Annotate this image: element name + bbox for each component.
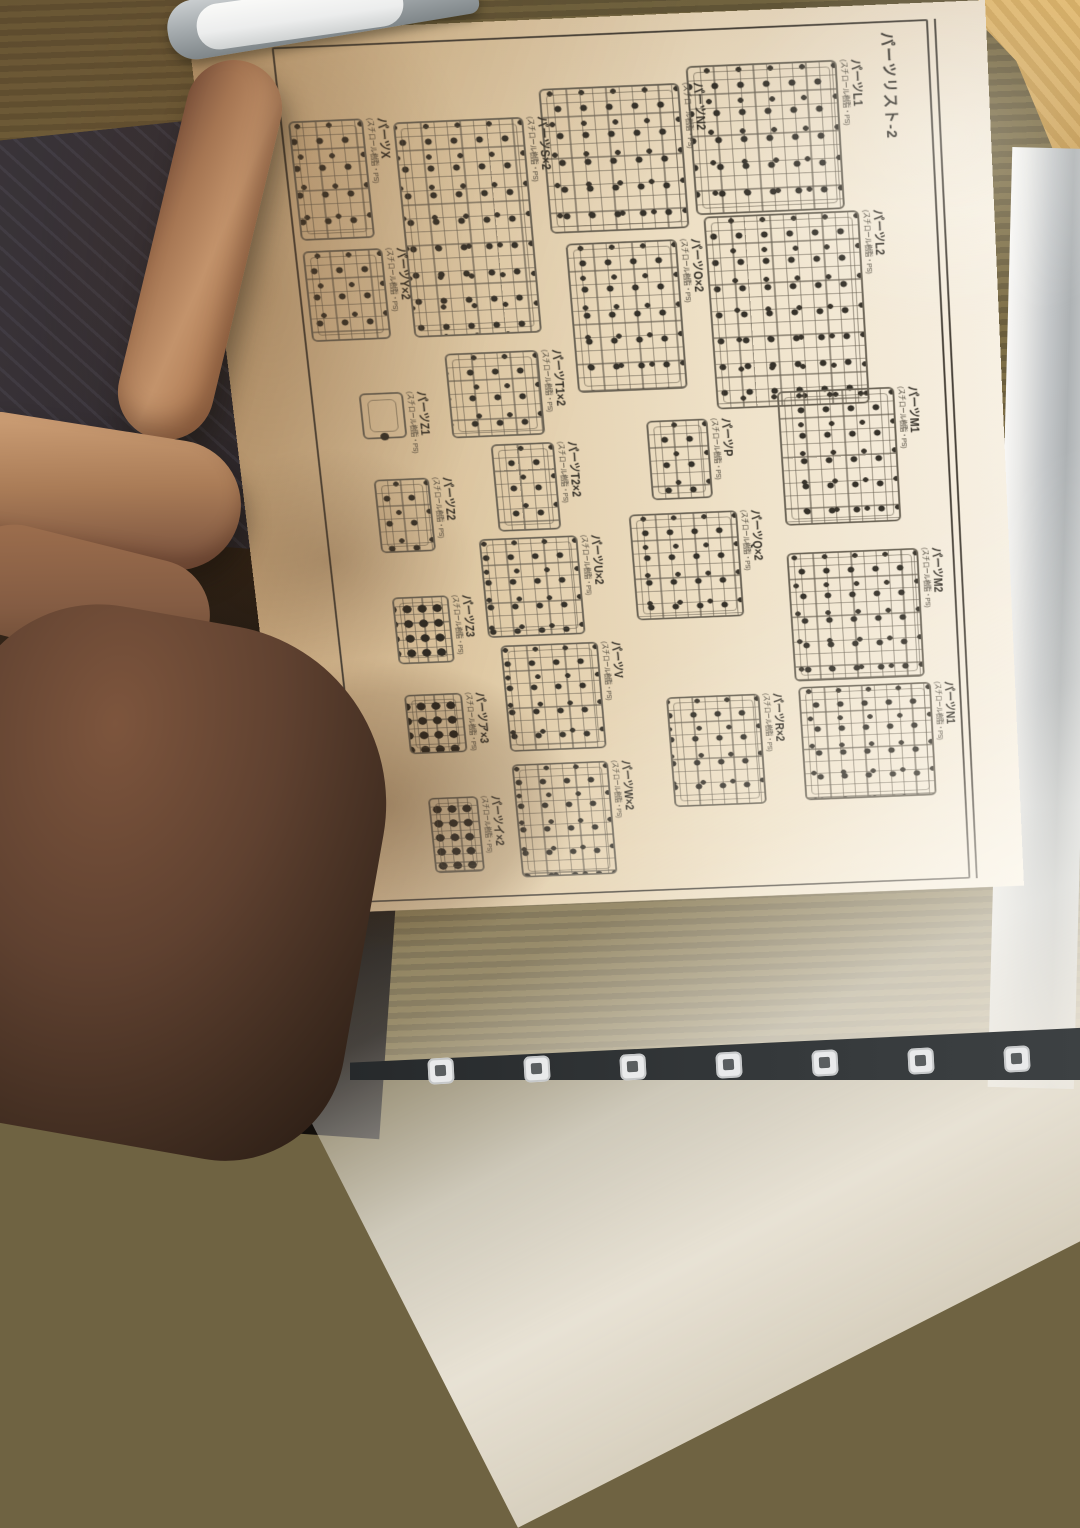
part-entry-t2: パーツT2×2 (スチロール樹脂・PS): [491, 441, 586, 532]
sprue-diagram: [374, 478, 437, 554]
part-entry-o: パーツO×2 (スチロール樹脂・PS): [565, 238, 712, 393]
part-entry-m1: パーツM1 (スチロール樹脂・PS): [777, 386, 926, 526]
part-entry-m2: パーツM2 (スチロール樹脂・PS): [786, 547, 949, 682]
sprue-diagram: [646, 418, 713, 500]
sprue-diagram: [538, 83, 689, 234]
part-entry-i-kana: パーツイ×2 (スチロール樹脂・PS): [428, 795, 509, 873]
sprue-diagram: [798, 682, 937, 801]
sprue-diagram: [404, 693, 468, 755]
sprue-diagram: [288, 118, 375, 241]
cover-tile-icon: [811, 1049, 838, 1076]
part-entry-w: パーツW×2 (スチロール樹脂・PS): [512, 760, 642, 878]
part-entry-s: パーツS×2 (スチロール樹脂・PS): [393, 116, 567, 338]
sprue-diagram: [777, 387, 902, 526]
part-entry-r: パーツR×2 (スチロール樹脂・PS): [666, 693, 791, 808]
cover-tile-icon: [619, 1053, 646, 1080]
part-entry-z1: パーツZ1 (スチロール樹脂・PS): [359, 391, 434, 456]
cover-tile-icon: [907, 1047, 934, 1074]
sprue-diagram: [500, 642, 607, 752]
sprue-diagram: [703, 210, 870, 409]
part-entry-n2: パーツN2 (スチロール樹脂・PS): [538, 82, 715, 234]
sprue-diagram: [428, 796, 485, 873]
part-entry-p: パーツP (スチロール樹脂・PS): [646, 417, 738, 500]
part-entry-v: パーツV (スチロール樹脂・PS): [500, 641, 631, 752]
sprue-diagram: [444, 350, 545, 439]
sprue-diagram: [359, 392, 408, 440]
part-entry-q: パーツQ×2 (スチロール樹脂・PS): [629, 509, 769, 620]
part-entry-a-kana: パーツア×3 (スチロール樹脂・PS): [404, 692, 492, 755]
part-entry-t1: パーツT1×2 (スチロール樹脂・PS): [444, 349, 570, 439]
sprue-diagram: [479, 535, 586, 638]
sprue-diagram: [393, 117, 542, 338]
sprue-diagram: [512, 761, 618, 878]
part-entry-y: パーツY×2 (スチロール樹脂・PS): [302, 247, 416, 342]
sprue-diagram: [629, 510, 745, 620]
part-entry-l2: パーツL2 (スチロール樹脂・PS): [703, 209, 895, 409]
sprue-diagram: [565, 239, 687, 393]
sprue-diagram: [392, 595, 455, 664]
part-entry-n1: パーツN1 (スチロール樹脂・PS): [798, 681, 961, 801]
part-entry-x: パーツX (スチロール樹脂・PS): [288, 117, 401, 241]
sprue-diagram: [302, 248, 391, 342]
cover-tile-icon: [715, 1051, 742, 1078]
sprue-diagram: [786, 548, 924, 682]
cover-tile-icon: [427, 1057, 454, 1084]
part-entry-z3: パーツZ3 (スチロール樹脂・PS): [392, 594, 479, 664]
cover-tile-icon: [1003, 1045, 1030, 1072]
part-entry-l1: パーツL1 (スチロール樹脂・PS): [686, 59, 871, 216]
part-entry-z2: パーツZ2 (スチロール樹脂・PS): [374, 477, 461, 554]
sprue-diagram: [666, 694, 767, 808]
part-entry-u: パーツU×2 (スチロール樹脂・PS): [479, 534, 610, 638]
sprue-diagram: [491, 442, 562, 532]
cover-tile-icon: [523, 1055, 550, 1082]
